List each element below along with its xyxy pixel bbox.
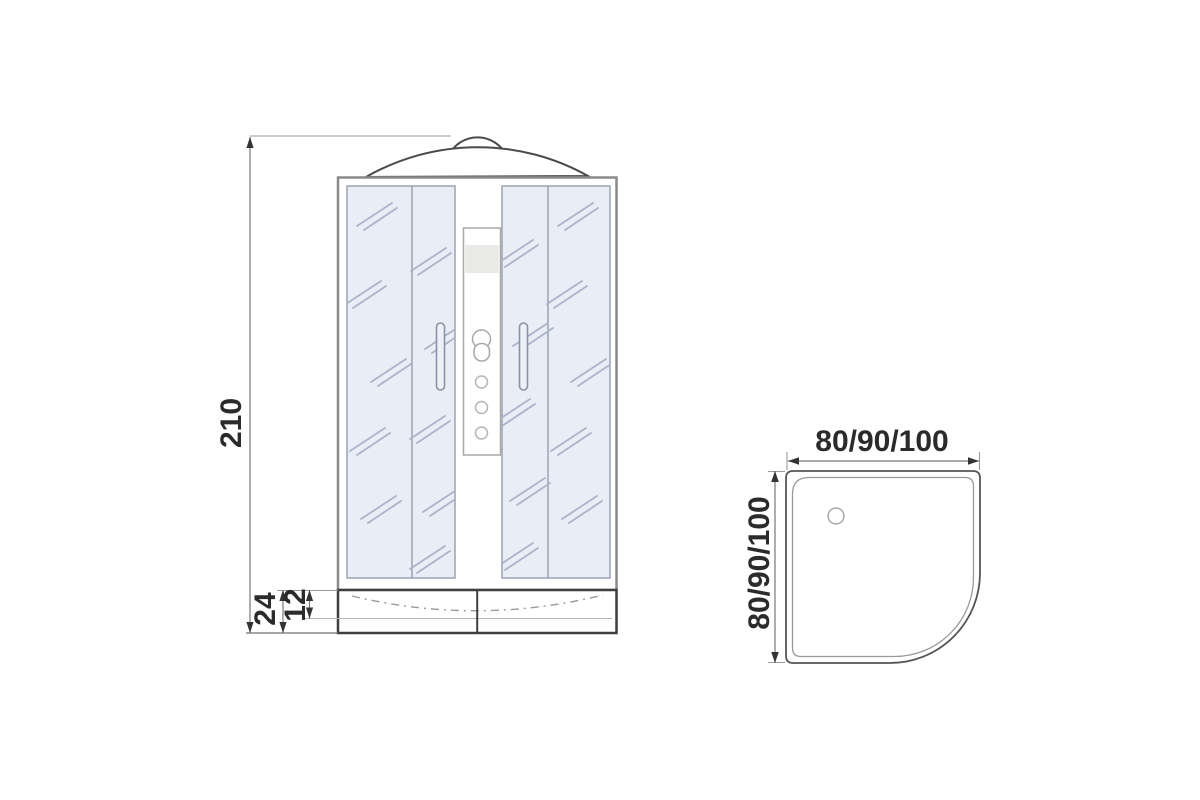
glass-door-right [495,186,611,578]
height-dimension-label: 210 [215,343,249,503]
jet-knob-3 [476,427,488,439]
glass-door-left [346,186,465,578]
basin-depth-dimension-label: 12 [279,525,313,685]
door-handle-left [437,323,445,390]
door-handle-right [520,323,528,390]
technical-drawing-canvas: 210 24 12 80/90/100 80/90/100 [0,0,1200,800]
drawing-svg [0,0,1200,800]
tray-plan [786,471,980,663]
jet-knob-2 [476,402,488,414]
shower-column [464,228,501,455]
jet-knob-1 [476,376,488,388]
tray-front [303,590,617,633]
plan-depth-dimension-label: 80/90/100 [743,483,777,643]
tray-height-dimension-label: 24 [249,529,283,689]
mixer-lever [474,344,490,362]
plan-view-drawing [768,452,980,663]
dome-roof [366,137,588,177]
drain-hole [828,508,844,524]
plan-width-dimension-label: 80/90/100 [802,425,962,459]
